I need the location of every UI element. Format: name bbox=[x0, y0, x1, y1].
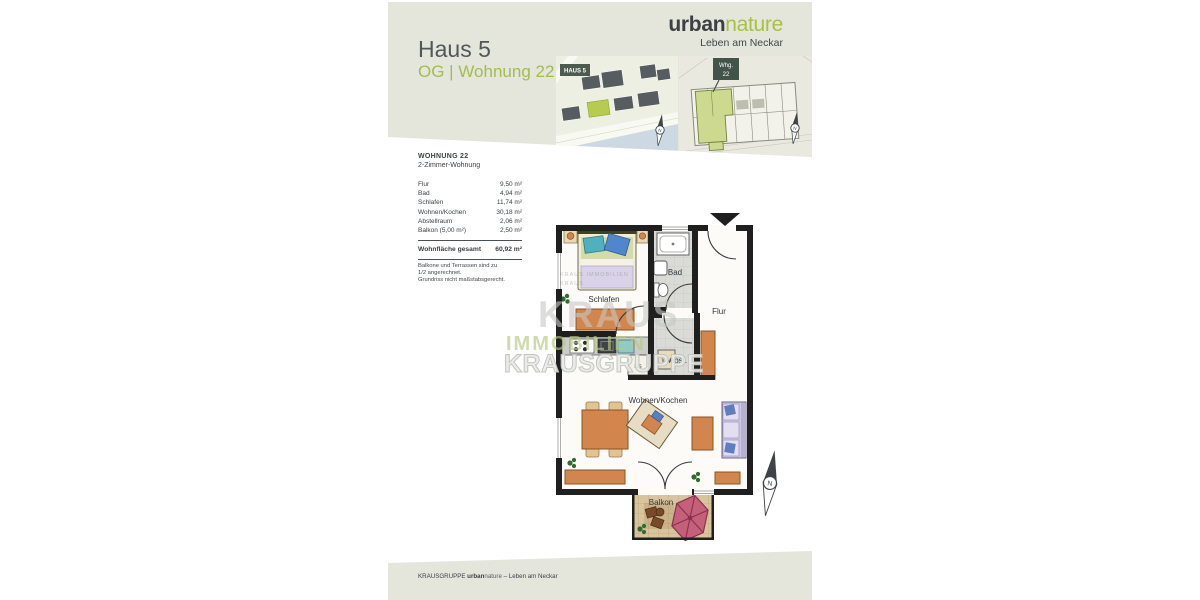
sofa-pillow bbox=[724, 442, 736, 454]
footnotes: Balkone und Terrassen sind zu 1/2 angere… bbox=[418, 263, 528, 285]
footer-text: KRAUSGRUPPE urbannature – Leben am Necka… bbox=[418, 573, 558, 580]
brand-logo: urbannature Leben am Neckar bbox=[668, 14, 783, 49]
table-row: Balkon (5,00 m²)2,50 m² bbox=[418, 226, 522, 235]
svg-text:N: N bbox=[658, 128, 662, 133]
stove bbox=[570, 339, 594, 353]
total-label: Wohnfläche gesamt bbox=[418, 245, 481, 254]
toilet bbox=[654, 283, 668, 297]
pillow-teal bbox=[583, 236, 605, 254]
coffee-table bbox=[692, 417, 713, 450]
label-bad: Bad bbox=[668, 268, 682, 277]
row-value: 9,50 m² bbox=[500, 180, 522, 189]
footer-company: KRAUSGRUPPE bbox=[418, 573, 467, 580]
fridge-label: KS bbox=[634, 364, 642, 370]
kitchen-sink bbox=[618, 340, 634, 353]
row-value: 2,50 m² bbox=[500, 226, 522, 235]
footer-brand-bold: urban bbox=[467, 573, 484, 580]
header-band: Haus 5 OG | Wohnung 22 urbannature Leben… bbox=[388, 0, 812, 160]
haus5-badge-label: HAUS 5 bbox=[564, 69, 587, 75]
kitchen-counter bbox=[562, 337, 650, 355]
page-subtitle: OG | Wohnung 22 bbox=[418, 62, 554, 82]
unit-type: 2-Zimmer-Wohnung bbox=[418, 161, 480, 170]
area-table: Flur9,50 m² Bad4,94 m² Schlafen11,74 m² … bbox=[418, 180, 522, 264]
logo-nature: nature bbox=[725, 13, 783, 36]
page-title-block: Haus 5 OG | Wohnung 22 bbox=[418, 36, 554, 82]
site-plan-map: HAUS 5 N bbox=[556, 56, 678, 156]
footnote-line: Grundriss nicht maßstabsgerecht. bbox=[418, 277, 528, 284]
floor-overview-svg: Whg. 22 N bbox=[679, 56, 812, 156]
bathtub bbox=[657, 233, 689, 255]
table-divider bbox=[418, 240, 522, 241]
floorplan: KS WM bbox=[548, 203, 788, 553]
table-row: Abstellraum2,06 m² bbox=[418, 217, 522, 226]
row-label: Schlafen bbox=[418, 198, 443, 207]
sofa bbox=[722, 402, 746, 458]
label-balkon: Balkon bbox=[649, 498, 673, 507]
row-value: 4,94 m² bbox=[500, 189, 522, 198]
hall-wardrobe bbox=[701, 331, 715, 379]
site-plan-svg: HAUS 5 N bbox=[556, 56, 678, 156]
whg22-badge-line2: 22 bbox=[723, 72, 730, 78]
label-schlafen: Schlafen bbox=[588, 295, 619, 304]
label-abst: Abst. bbox=[669, 356, 687, 365]
footnote-line: 1/2 angerechnet. bbox=[418, 270, 528, 277]
bedroom-sideboard bbox=[576, 309, 634, 330]
label-wohnen: Wohnen/Kochen bbox=[628, 396, 687, 405]
row-label: Flur bbox=[418, 180, 429, 189]
unit-heading: WOHNUNG 22 2-Zimmer-Wohnung bbox=[418, 152, 480, 171]
row-label: Abstellraum bbox=[418, 217, 452, 226]
floor-overview-map: Whg. 22 N bbox=[679, 56, 812, 156]
label-flur: Flur bbox=[712, 307, 726, 316]
unit-name: WOHNUNG 22 bbox=[418, 152, 480, 161]
page-title: Haus 5 bbox=[418, 36, 554, 62]
row-value: 11,74 m² bbox=[497, 198, 522, 207]
compass-letter: N bbox=[767, 480, 773, 488]
highlighted-building-haus5 bbox=[587, 100, 610, 118]
table-row: Bad4,94 m² bbox=[418, 189, 522, 198]
row-label: Bad bbox=[418, 189, 430, 198]
footer-brand-light: nature bbox=[484, 573, 502, 580]
compass-icon: N bbox=[758, 449, 781, 516]
svg-text:N: N bbox=[793, 126, 797, 131]
dining-table bbox=[582, 410, 628, 449]
total-value: 60,92 m² bbox=[495, 245, 522, 254]
sink bbox=[654, 261, 667, 275]
logo-urban: urban bbox=[668, 13, 725, 36]
table-row: Schlafen11,74 m² bbox=[418, 198, 522, 207]
footnote-line: Balkone und Terrassen sind zu bbox=[418, 263, 528, 270]
living-sideboard-right bbox=[715, 472, 740, 484]
floorplan-svg: KS WM bbox=[548, 203, 788, 553]
footer-suffix: – Leben am Neckar bbox=[502, 573, 558, 580]
bed bbox=[576, 227, 638, 290]
row-label: Balkon (5,00 m²) bbox=[418, 226, 466, 235]
fridge: KS bbox=[628, 355, 648, 375]
table-total-row: Wohnfläche gesamt60,92 m² bbox=[418, 245, 522, 254]
logo-tagline: Leben am Neckar bbox=[668, 38, 783, 49]
row-value: 30,18 m² bbox=[496, 208, 522, 217]
entrance-marker-icon bbox=[710, 213, 740, 226]
row-label: Wohnen/Kochen bbox=[418, 208, 466, 217]
table-divider bbox=[418, 259, 522, 260]
living-sideboard-left bbox=[565, 470, 625, 484]
brochure-page: Haus 5 OG | Wohnung 22 urbannature Leben… bbox=[388, 0, 812, 600]
sofa-pillow bbox=[724, 404, 736, 416]
apartment-balcony bbox=[709, 142, 724, 151]
row-value: 2,06 m² bbox=[500, 217, 522, 226]
whg22-badge-line1: Whg. bbox=[719, 63, 733, 69]
table-row: Flur9,50 m² bbox=[418, 180, 522, 189]
table-row: Wohnen/Kochen30,18 m² bbox=[418, 208, 522, 217]
